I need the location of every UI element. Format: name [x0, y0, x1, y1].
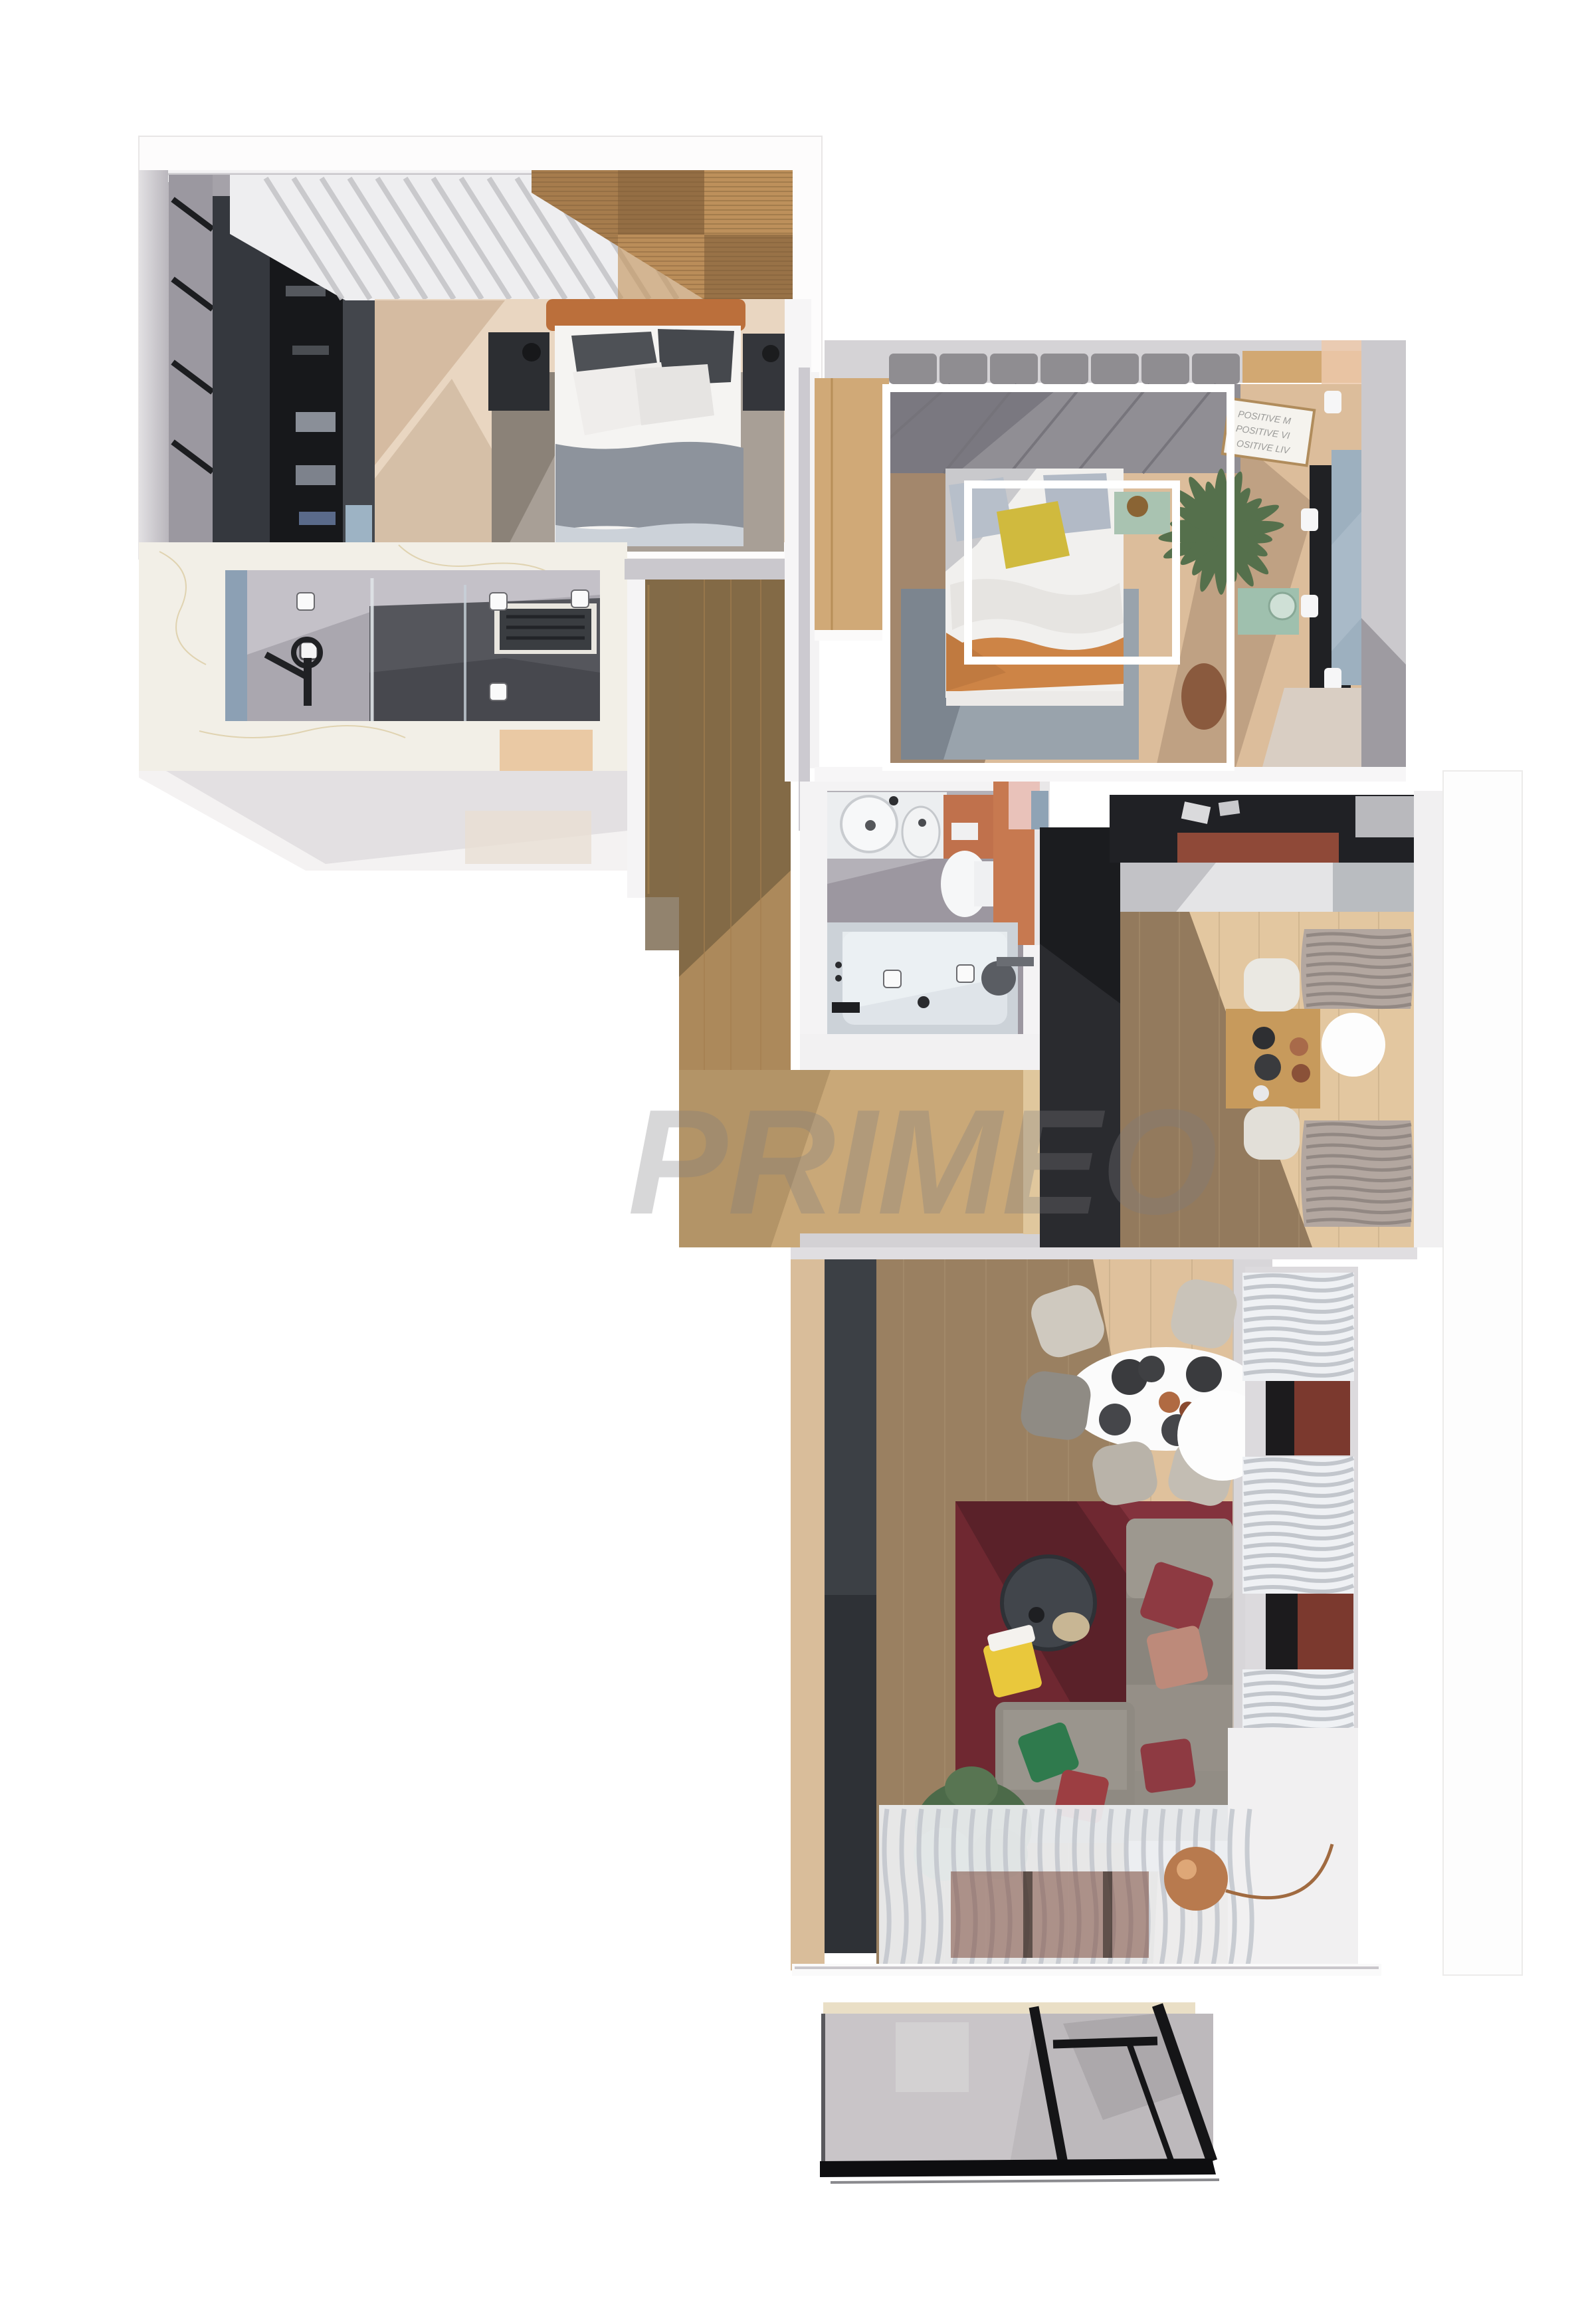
svg-text:PRIMEO: PRIMEO [628, 1078, 1218, 1245]
